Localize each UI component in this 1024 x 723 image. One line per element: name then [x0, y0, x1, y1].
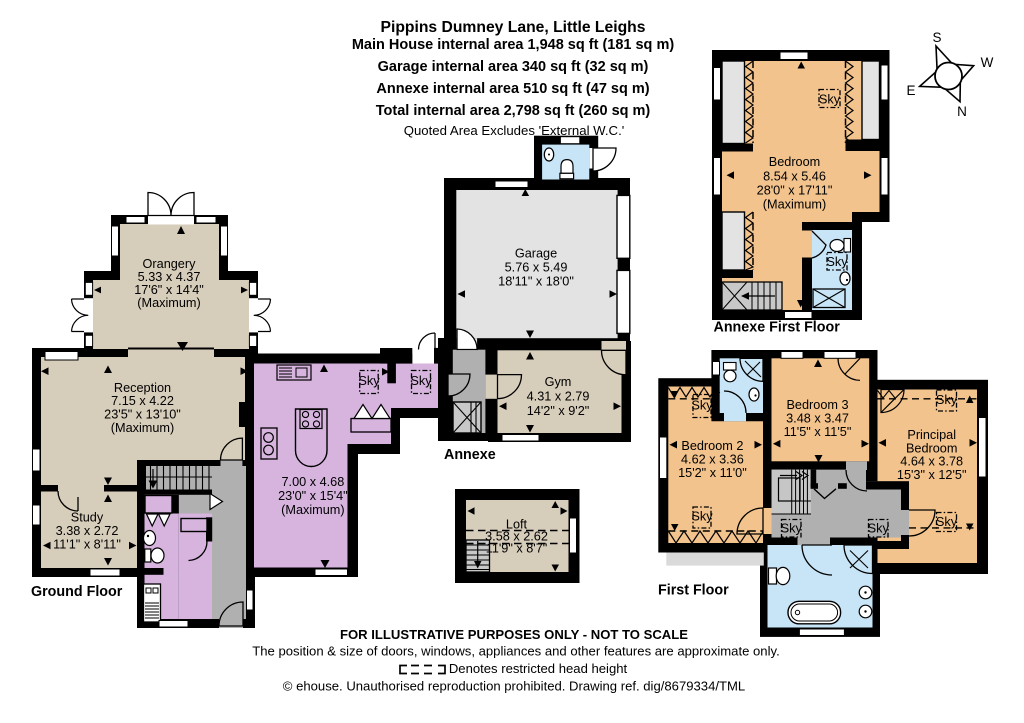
svg-text:18'11" x 18'0": 18'11" x 18'0": [498, 275, 574, 289]
svg-text:Sky: Sky: [691, 398, 713, 413]
svg-text:8.54 x 5.46: 8.54 x 5.46: [763, 170, 826, 184]
svg-text:E: E: [906, 83, 915, 98]
svg-text:Bedroom: Bedroom: [769, 155, 820, 169]
svg-text:5.76 x 5.49: 5.76 x 5.49: [505, 261, 568, 275]
svg-text:Bedroom 3: Bedroom 3: [786, 398, 848, 412]
svg-text:© ehouse. Unauthorised reprodu: © ehouse. Unauthorised reproduction proh…: [283, 679, 745, 694]
svg-text:Ground Floor: Ground Floor: [31, 584, 123, 600]
svg-text:Sky: Sky: [826, 254, 848, 269]
svg-text:Orangery: Orangery: [143, 257, 197, 271]
svg-text:Garage internal area 340 sq ft: Garage internal area 340 sq ft (32 sq m): [378, 59, 649, 75]
svg-text:11'1" x 8'11": 11'1" x 8'11": [53, 538, 121, 552]
svg-text:Principal: Principal: [907, 428, 956, 442]
svg-text:First Floor: First Floor: [658, 583, 729, 599]
svg-text:Main House internal area 1,948: Main House internal area 1,948 sq ft (18…: [352, 37, 675, 53]
svg-text:14'2" x 9'2": 14'2" x 9'2": [527, 404, 590, 418]
svg-text:3.48 x 3.47: 3.48 x 3.47: [786, 412, 849, 426]
svg-text:Sky: Sky: [868, 521, 890, 536]
svg-text:Gym: Gym: [545, 375, 572, 389]
svg-text:7.15 x 4.22: 7.15 x 4.22: [111, 394, 174, 408]
svg-text:Total internal area 2,798 sq f: Total internal area 2,798 sq ft (260 sq …: [376, 103, 651, 119]
svg-text:(Maximum): (Maximum): [137, 296, 200, 310]
svg-text:Annexe internal area 510 sq ft: Annexe internal area 510 sq ft (47 sq m): [376, 81, 649, 97]
svg-text:15'3" x 12'5": 15'3" x 12'5": [897, 468, 967, 482]
svg-text:FOR ILLUSTRATIVE PURPOSES ONLY: FOR ILLUSTRATIVE PURPOSES ONLY - NOT TO …: [340, 627, 688, 642]
svg-text:28'0" x 17'11": 28'0" x 17'11": [757, 184, 833, 198]
svg-text:3.38 x 2.72: 3.38 x 2.72: [56, 524, 119, 538]
svg-text:Sky: Sky: [936, 392, 958, 407]
svg-text:(Maximum): (Maximum): [763, 198, 826, 212]
svg-text:23'0" x 15'4": 23'0" x 15'4": [278, 489, 348, 503]
svg-text:5.33 x 4.37: 5.33 x 4.37: [138, 270, 201, 284]
svg-text:11'5" x 11'5": 11'5" x 11'5": [784, 425, 852, 439]
svg-text:Bedroom 2: Bedroom 2: [681, 439, 743, 453]
svg-text:Sky: Sky: [819, 92, 841, 107]
svg-text:Annexe: Annexe: [444, 447, 496, 463]
svg-text:Annexe First Floor: Annexe First Floor: [714, 320, 841, 336]
svg-text:(Maximum): (Maximum): [281, 503, 344, 517]
svg-text:11'9" x 8'7": 11'9" x 8'7": [486, 542, 548, 556]
svg-text:Study: Study: [71, 511, 104, 525]
svg-text:W: W: [981, 55, 994, 70]
svg-text:Sky: Sky: [691, 509, 713, 524]
svg-text:Sky: Sky: [936, 514, 958, 529]
svg-text:15'2" x 11'0": 15'2" x 11'0": [678, 466, 747, 480]
svg-text:Reception: Reception: [114, 381, 171, 395]
svg-text:4.62 x 3.36: 4.62 x 3.36: [681, 453, 744, 467]
svg-text:(Maximum): (Maximum): [111, 421, 174, 435]
svg-text:4.64 x 3.78: 4.64 x 3.78: [900, 454, 963, 468]
svg-text:N: N: [957, 104, 967, 119]
svg-text:Bedroom: Bedroom: [906, 441, 957, 455]
svg-text:4.31 x 2.79: 4.31 x 2.79: [527, 390, 590, 404]
svg-text:Sky: Sky: [781, 521, 803, 536]
svg-text:Sky: Sky: [410, 373, 432, 388]
svg-text:Garage: Garage: [515, 247, 557, 261]
svg-text:Sky: Sky: [358, 373, 380, 388]
svg-text:S: S: [932, 30, 941, 45]
svg-text:17'6" x 14'4": 17'6" x 14'4": [134, 283, 204, 297]
svg-text:7.00 x 4.68: 7.00 x 4.68: [282, 475, 345, 489]
svg-text:Denotes restricted head height: Denotes restricted head height: [449, 661, 628, 676]
svg-text:23'5" x 13'10": 23'5" x 13'10": [104, 408, 181, 422]
svg-text:Pippins Dumney Lane, Little Le: Pippins Dumney Lane, Little Leighs: [381, 19, 646, 36]
svg-text:The position & size of doors,: The position & size of doors, windows, a…: [252, 644, 779, 659]
